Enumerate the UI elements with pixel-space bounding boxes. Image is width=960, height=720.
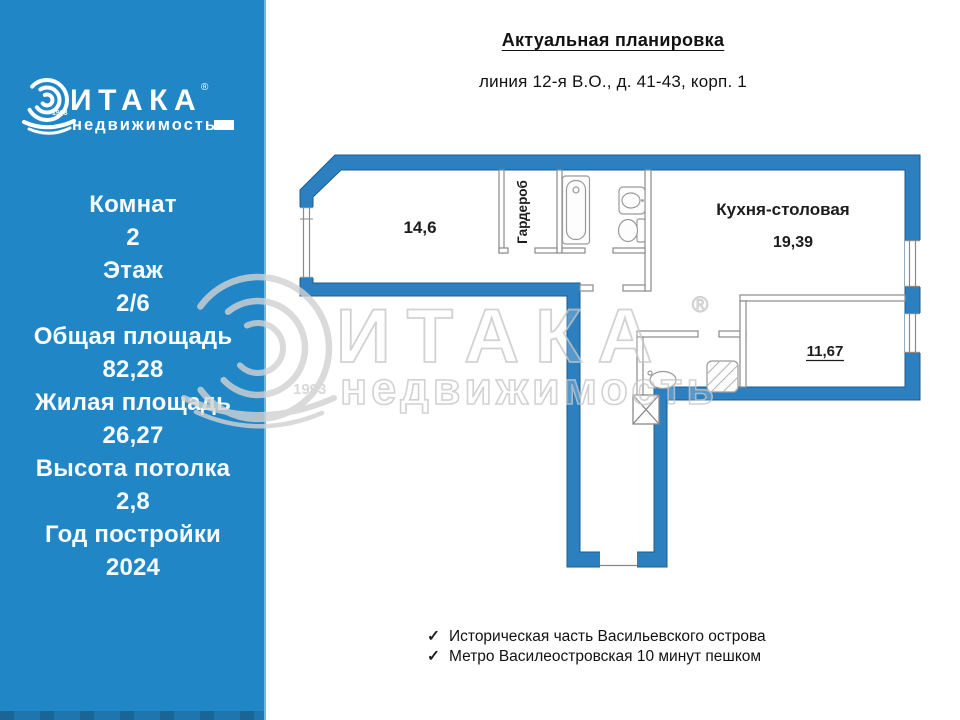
room-label-bedroom-area: 11,67: [807, 343, 844, 360]
watermark: 1993 ИТАКА ® недвижимость: [184, 277, 718, 426]
feature-text: Историческая часть Васильевского острова: [449, 627, 766, 647]
window-right-upper: [905, 240, 921, 287]
room-label-wardrobe: Гардероб: [515, 180, 530, 244]
feature-item: ✓ Метро Василеостровская 10 минут пешком: [427, 647, 766, 667]
entrance-door-opening: [600, 551, 637, 568]
watermark-registered-icon: ®: [692, 292, 708, 317]
sink-icon: [619, 187, 645, 214]
room-label-kitchen-area: 19,39: [773, 234, 813, 251]
watermark-sub: недвижимость: [340, 363, 718, 414]
room-label-living: 14,6: [403, 218, 436, 237]
feature-text: Метро Василеостровская 10 минут пешком: [449, 647, 761, 667]
check-icon: ✓: [427, 627, 440, 647]
bathtub-icon: [563, 176, 590, 244]
window-left: [300, 207, 314, 278]
watermark-year: 1993: [293, 381, 326, 398]
check-icon: ✓: [427, 647, 440, 667]
floor-plan: 1993 ИТАКА ® недвижимость 14,6 Гардероб …: [0, 0, 960, 720]
feature-item: ✓ Историческая часть Васильевского остро…: [427, 627, 766, 647]
feature-list: ✓ Историческая часть Васильевского остро…: [427, 627, 766, 667]
toilet-icon: [619, 219, 646, 242]
room-label-kitchen: Кухня-столовая: [716, 200, 849, 219]
window-right-lower: [905, 313, 921, 353]
